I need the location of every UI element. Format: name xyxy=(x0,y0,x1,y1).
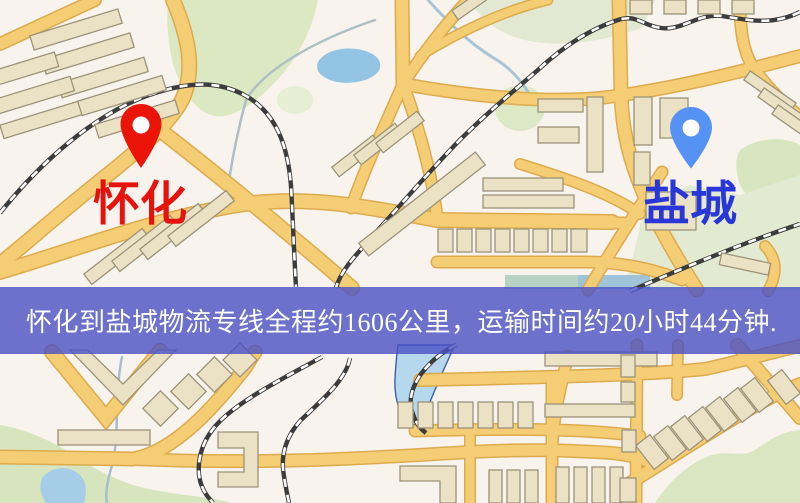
building xyxy=(507,470,520,503)
building xyxy=(498,402,513,428)
banner-text: 怀化到盐城物流专线全程约1606公里，运输时间约20小时44分钟. xyxy=(26,308,777,337)
building xyxy=(621,355,635,377)
pin-hole xyxy=(133,117,150,134)
road xyxy=(437,221,625,223)
building xyxy=(518,402,533,428)
pin-hole xyxy=(683,120,700,137)
building xyxy=(698,0,720,14)
river xyxy=(505,275,580,289)
building xyxy=(664,0,686,14)
building xyxy=(571,229,587,252)
building xyxy=(483,195,574,208)
building xyxy=(476,229,491,252)
building xyxy=(622,430,636,452)
building xyxy=(545,352,657,366)
building xyxy=(438,402,453,428)
map-screenshot: 怀化 盐城 怀化到盐城物流专线全程约1606公里，运输时间约20小时44分钟. xyxy=(0,0,800,503)
building xyxy=(418,402,433,428)
building xyxy=(58,430,150,445)
building xyxy=(495,229,510,252)
building xyxy=(533,229,548,252)
road xyxy=(402,0,403,84)
building xyxy=(592,467,605,503)
building xyxy=(620,478,636,502)
building xyxy=(525,470,538,503)
park-area xyxy=(277,86,313,114)
building xyxy=(514,229,529,252)
building xyxy=(732,0,754,14)
building xyxy=(634,97,652,145)
building xyxy=(587,97,603,172)
building xyxy=(538,99,583,112)
building xyxy=(556,467,569,503)
origin-city-label: 怀化 xyxy=(93,179,187,231)
destination-city-label: 盐城 xyxy=(643,179,737,231)
building xyxy=(552,229,567,252)
building xyxy=(538,127,579,143)
building xyxy=(489,470,502,503)
building xyxy=(483,178,563,191)
building xyxy=(545,404,635,417)
building xyxy=(478,402,493,428)
building xyxy=(398,402,413,428)
building xyxy=(574,467,587,503)
building xyxy=(458,402,473,428)
building xyxy=(621,382,635,402)
building xyxy=(630,0,652,14)
route-info-banner: 怀化到盐城物流专线全程约1606公里，运输时间约20小时44分钟. xyxy=(0,287,800,354)
map-canvas: 怀化 盐城 怀化到盐城物流专线全程约1606公里，运输时间约20小时44分钟. xyxy=(0,0,800,503)
building xyxy=(438,229,453,252)
building xyxy=(457,229,472,252)
